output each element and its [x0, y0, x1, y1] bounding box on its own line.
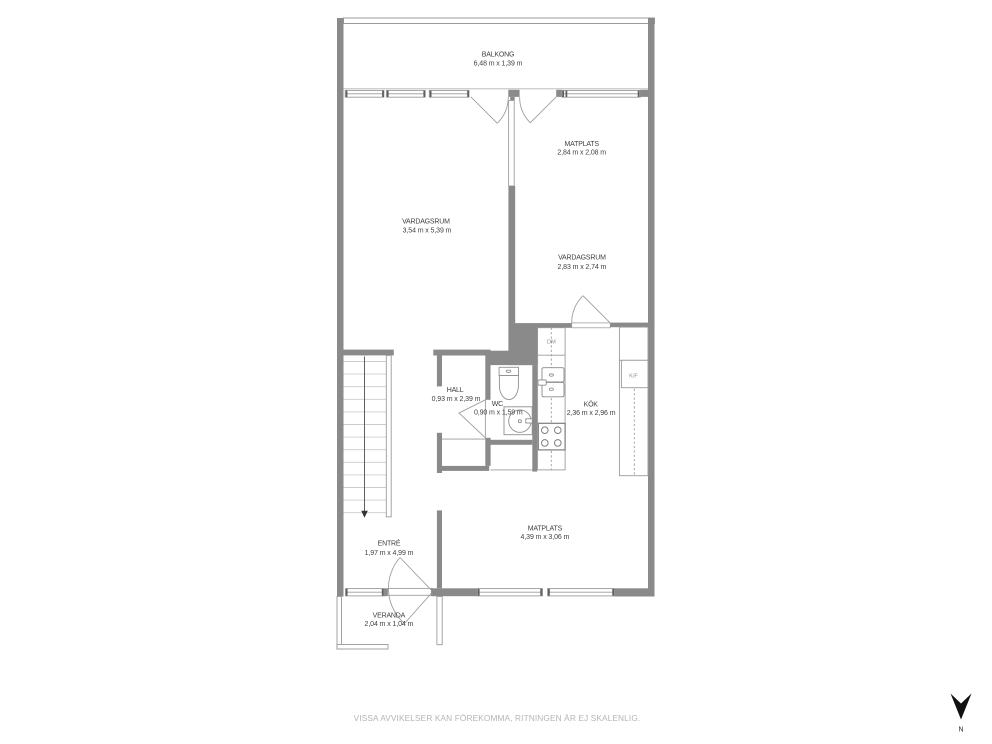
svg-text:2,84 m x 2,08 m: 2,84 m x 2,08 m: [557, 150, 606, 157]
svg-text:6,48 m x 1,39 m: 6,48 m x 1,39 m: [474, 60, 523, 67]
svg-text:2,04 m x 1,04 m: 2,04 m x 1,04 m: [365, 621, 414, 628]
svg-text:VISSA AVVIKELSER KAN FÖREKOMMA: VISSA AVVIKELSER KAN FÖREKOMMA, RITNINGE…: [354, 713, 641, 723]
svg-text:1,97 m x 4,99 m: 1,97 m x 4,99 m: [365, 550, 414, 557]
svg-text:0,90 m x 1,59 m: 0,90 m x 1,59 m: [474, 410, 523, 417]
svg-text:ENTRÉ: ENTRÉ: [378, 539, 401, 548]
svg-text:0,93 m x 2,39 m: 0,93 m x 2,39 m: [432, 396, 481, 403]
svg-text:2,36 m x 2,96 m: 2,36 m x 2,96 m: [567, 410, 616, 417]
svg-text:VERANDA: VERANDA: [373, 612, 406, 619]
svg-text:MATPLATS: MATPLATS: [528, 526, 563, 533]
svg-text:BALKONG: BALKONG: [482, 52, 514, 59]
svg-text:HALL: HALL: [447, 387, 464, 394]
svg-text:3,54 m x 5,39 m: 3,54 m x 5,39 m: [403, 228, 452, 235]
svg-text:4,39 m x 3,06 m: 4,39 m x 3,06 m: [521, 534, 570, 541]
svg-text:KÖK: KÖK: [584, 400, 599, 408]
svg-text:VARDAGSRUM: VARDAGSRUM: [402, 218, 450, 225]
svg-text:DM: DM: [547, 340, 556, 346]
svg-text:VARDAGSRUM: VARDAGSRUM: [558, 254, 606, 261]
svg-text:2,83 m x 2,74 m: 2,83 m x 2,74 m: [558, 264, 607, 271]
svg-text:MATPLATS: MATPLATS: [565, 141, 600, 148]
svg-text:K/F: K/F: [629, 374, 638, 380]
svg-text:N: N: [958, 727, 963, 734]
svg-text:WC: WC: [492, 401, 503, 408]
